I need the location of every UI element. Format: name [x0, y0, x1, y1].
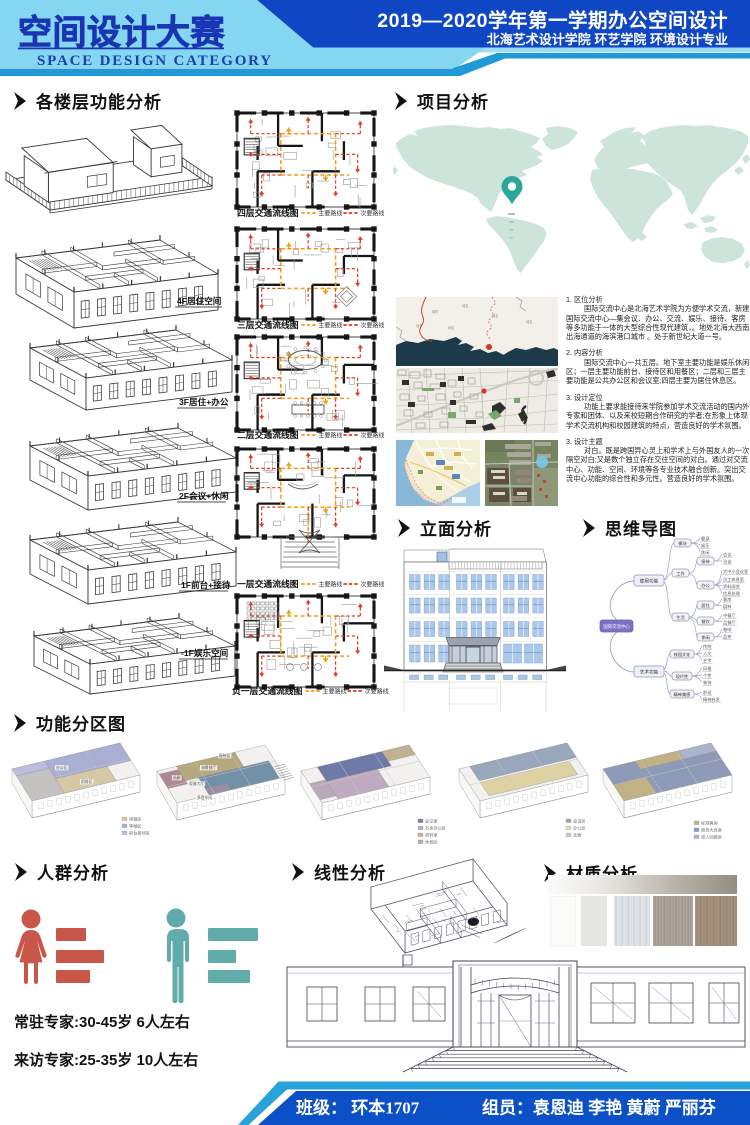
- svg-text:商务大床房: 商务大床房: [701, 827, 722, 834]
- svg-text:走廊: 走廊: [573, 832, 581, 839]
- svg-text:1F前台+接待: 1F前台+接待: [181, 579, 231, 590]
- svg-text:多登车间: 多登车间: [197, 795, 212, 800]
- svg-text:班级： 环本1707: 班级： 环本1707: [296, 1098, 420, 1118]
- svg-text:3F居住+办公: 3F居住+办公: [179, 396, 229, 407]
- svg-text:用餐区: 用餐区: [81, 779, 93, 784]
- svg-text:主要路线: 主要路线: [323, 688, 347, 696]
- svg-text:画廊: 画廊: [173, 775, 181, 780]
- svg-text:资料室: 资料室: [425, 832, 438, 839]
- svg-text:城市: 城市: [432, 309, 439, 314]
- svg-text:模块: 模块: [678, 540, 687, 547]
- svg-text:工作: 工作: [676, 570, 685, 577]
- svg-text:双人间套房: 双人间套房: [701, 834, 722, 841]
- svg-text:生活: 生活: [676, 614, 684, 621]
- svg-text:主要路线: 主要路线: [318, 432, 342, 440]
- svg-text:接待区: 接待区: [219, 753, 231, 758]
- svg-text:地名: 地名: [448, 325, 454, 330]
- svg-text:会议室: 会议室: [425, 818, 438, 825]
- svg-text:空间设计大赛: 空间设计大赛: [18, 13, 225, 52]
- svg-text:组员：袁恩迪 李艳 黄蔚 严丽芬: 组员：袁恩迪 李艳 黄蔚 严丽芬: [482, 1098, 717, 1118]
- svg-text:地名: 地名: [526, 319, 532, 324]
- svg-text:接待: 接待: [701, 558, 710, 565]
- svg-text:办公区: 办公区: [56, 765, 68, 770]
- svg-text:次要路线: 次要路线: [360, 432, 384, 440]
- svg-text:标准客房: 标准客房: [701, 820, 718, 827]
- svg-text:等候区: 等候区: [129, 823, 142, 830]
- svg-text:二层交通流线图: 二层交通流线图: [237, 429, 299, 440]
- svg-text:居住: 居住: [701, 602, 710, 609]
- svg-text:地名: 地名: [462, 303, 468, 308]
- svg-text:观演大厅: 观演大厅: [189, 781, 204, 786]
- svg-text:休闲: 休闲: [701, 634, 709, 641]
- svg-text:次要路线: 次要路线: [360, 210, 384, 218]
- svg-text:艺术功能: 艺术功能: [640, 668, 659, 675]
- svg-text:-1F娱乐空间: -1F娱乐空间: [181, 647, 229, 658]
- svg-text:四层交通流线图: 四层交通流线图: [237, 207, 299, 218]
- svg-text:4F居住空间: 4F居住空间: [177, 295, 222, 306]
- svg-text:主要路线: 主要路线: [318, 210, 342, 218]
- svg-text:办公区: 办公区: [573, 825, 586, 832]
- svg-text:会议区: 会议区: [573, 818, 586, 825]
- svg-text:前台接待区: 前台接待区: [129, 830, 150, 837]
- svg-text:北海艺术设计学院 环艺学院 环境设计专业: 北海艺术设计学院 环艺学院 环境设计专业: [487, 32, 728, 47]
- svg-text:主要路线: 主要路线: [318, 581, 342, 589]
- svg-text:主要路线: 主要路线: [318, 322, 342, 330]
- svg-text:现代性: 现代性: [676, 673, 689, 680]
- svg-text:用餐区: 用餐区: [129, 816, 142, 823]
- svg-text:海景餐厅: 海景餐厅: [201, 765, 216, 770]
- svg-text:餐饮: 餐饮: [701, 618, 710, 625]
- svg-text:使用功能: 使用功能: [640, 577, 659, 584]
- svg-text:2019—2020学年第一学期办公空间设计: 2019—2020学年第一学期办公空间设计: [377, 9, 728, 32]
- svg-text:地名: 地名: [416, 323, 422, 328]
- svg-text:2F会议+休闲: 2F会议+休闲: [179, 490, 229, 501]
- svg-text:石永办公区: 石永办公区: [425, 825, 446, 832]
- svg-text:负一层交通流线图: 负一层交通流线图: [232, 685, 303, 696]
- svg-text:办公: 办公: [701, 582, 710, 589]
- svg-text:地名: 地名: [492, 313, 498, 318]
- svg-text:一层交通流线图: 一层交通流线图: [237, 578, 299, 589]
- svg-text:休息区: 休息区: [425, 839, 438, 846]
- svg-text:国际交流中心: 国际交流中心: [603, 623, 630, 630]
- svg-text:次要路线: 次要路线: [360, 322, 384, 330]
- svg-text:SPACE DESIGN CATEGORY: SPACE DESIGN CATEGORY: [37, 53, 273, 69]
- svg-text:三层交通流线图: 三层交通流线图: [237, 319, 299, 330]
- svg-text:精神美感: 精神美感: [674, 691, 691, 698]
- svg-text:校园文化: 校园文化: [674, 651, 692, 658]
